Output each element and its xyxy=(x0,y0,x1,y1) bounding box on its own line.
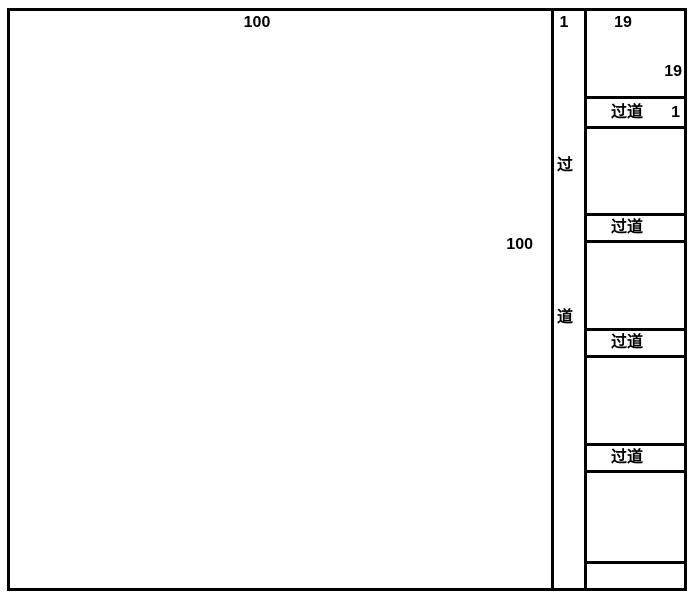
right-wing-aisle-1: 过道 1 xyxy=(587,99,684,129)
right-wing-room-4 xyxy=(587,358,684,446)
right-wing-aisle-2: 过道 xyxy=(587,216,684,243)
floor-plan-diagram: 100 100 1 过 道 19 19 过道 1 过道 过道 过道 xyxy=(0,0,700,606)
right-wing-room-5 xyxy=(587,473,684,564)
center-aisle-width-label: 1 xyxy=(560,15,569,31)
aisle-1-label: 过道 xyxy=(611,105,643,121)
main-hall-depth-label: 100 xyxy=(506,237,533,253)
center-aisle-label-char-top: 过 xyxy=(557,158,573,174)
aisle-4-label: 过道 xyxy=(611,450,643,466)
right-wing-room-3 xyxy=(587,243,684,331)
aisle-2-label: 过道 xyxy=(611,220,643,236)
right-wing-aisle-4: 过道 xyxy=(587,446,684,473)
main-hall-width-label: 100 xyxy=(244,15,271,31)
top-room-label: 19 xyxy=(614,15,632,31)
right-wing-room-2 xyxy=(587,129,684,216)
right-wing-column: 19 19 过道 1 过道 过道 过道 xyxy=(584,8,687,591)
top-room-right-label: 19 xyxy=(664,64,682,80)
center-aisle-strip: 1 过 道 xyxy=(551,8,587,591)
right-wing-bottom-strip xyxy=(587,564,684,588)
right-wing-top-room: 19 19 xyxy=(587,11,684,99)
aisle-1-width-label: 1 xyxy=(671,105,680,121)
main-hall: 100 100 xyxy=(7,8,554,591)
right-wing-aisle-3: 过道 xyxy=(587,331,684,358)
center-aisle-label-char-bottom: 道 xyxy=(557,310,573,326)
aisle-3-label: 过道 xyxy=(611,335,643,351)
